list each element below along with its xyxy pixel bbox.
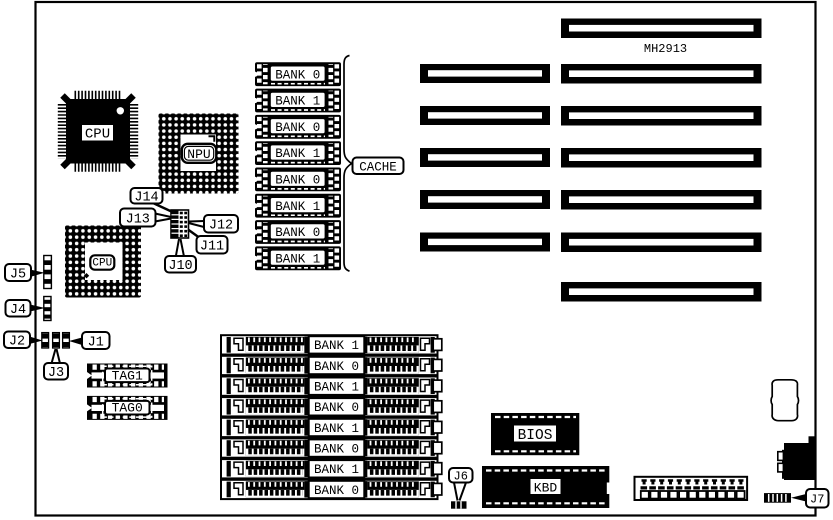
svg-text:BANK 0: BANK 0 bbox=[275, 174, 320, 188]
svg-text:J11: J11 bbox=[200, 240, 224, 255]
svg-text:BANK 1: BANK 1 bbox=[314, 381, 359, 395]
svg-text:BANK 0: BANK 0 bbox=[275, 68, 320, 82]
svg-text:J3: J3 bbox=[48, 366, 64, 381]
svg-text:BANK 1: BANK 1 bbox=[314, 422, 359, 436]
svg-text:NPU: NPU bbox=[187, 147, 210, 162]
svg-text:BANK 0: BANK 0 bbox=[314, 360, 359, 374]
svg-text:BANK 0: BANK 0 bbox=[314, 442, 359, 456]
svg-text:TAG0: TAG0 bbox=[112, 401, 143, 416]
svg-text:J4: J4 bbox=[10, 303, 26, 318]
svg-text:J7: J7 bbox=[810, 493, 824, 507]
svg-text:BANK 1: BANK 1 bbox=[275, 147, 320, 161]
svg-text:BANK 0: BANK 0 bbox=[275, 121, 320, 135]
svg-text:BANK 0: BANK 0 bbox=[314, 484, 359, 498]
svg-text:MH2913: MH2913 bbox=[644, 42, 687, 56]
svg-text:J6: J6 bbox=[454, 470, 468, 484]
svg-text:CACHE: CACHE bbox=[359, 160, 397, 174]
svg-text:CPU: CPU bbox=[85, 127, 110, 143]
svg-text:BANK 0: BANK 0 bbox=[314, 401, 359, 415]
svg-text:BANK 0: BANK 0 bbox=[275, 226, 320, 240]
svg-text:J13: J13 bbox=[126, 212, 150, 227]
svg-text:BIOS: BIOS bbox=[518, 428, 553, 444]
svg-text:TAG1: TAG1 bbox=[112, 368, 143, 383]
svg-text:J5: J5 bbox=[10, 267, 26, 282]
svg-text:J10: J10 bbox=[168, 259, 192, 274]
svg-text:CPU: CPU bbox=[92, 258, 112, 270]
svg-text:KBD: KBD bbox=[534, 480, 558, 495]
svg-text:BANK 1: BANK 1 bbox=[275, 95, 320, 109]
svg-text:BANK 1: BANK 1 bbox=[314, 339, 359, 353]
svg-text:BANK 1: BANK 1 bbox=[275, 200, 320, 214]
svg-text:J2: J2 bbox=[9, 335, 25, 350]
svg-text:J14: J14 bbox=[134, 191, 158, 206]
svg-text:J1: J1 bbox=[88, 335, 104, 350]
svg-text:J12: J12 bbox=[209, 219, 233, 234]
svg-text:BANK 1: BANK 1 bbox=[275, 252, 320, 266]
svg-text:BANK 1: BANK 1 bbox=[314, 463, 359, 477]
